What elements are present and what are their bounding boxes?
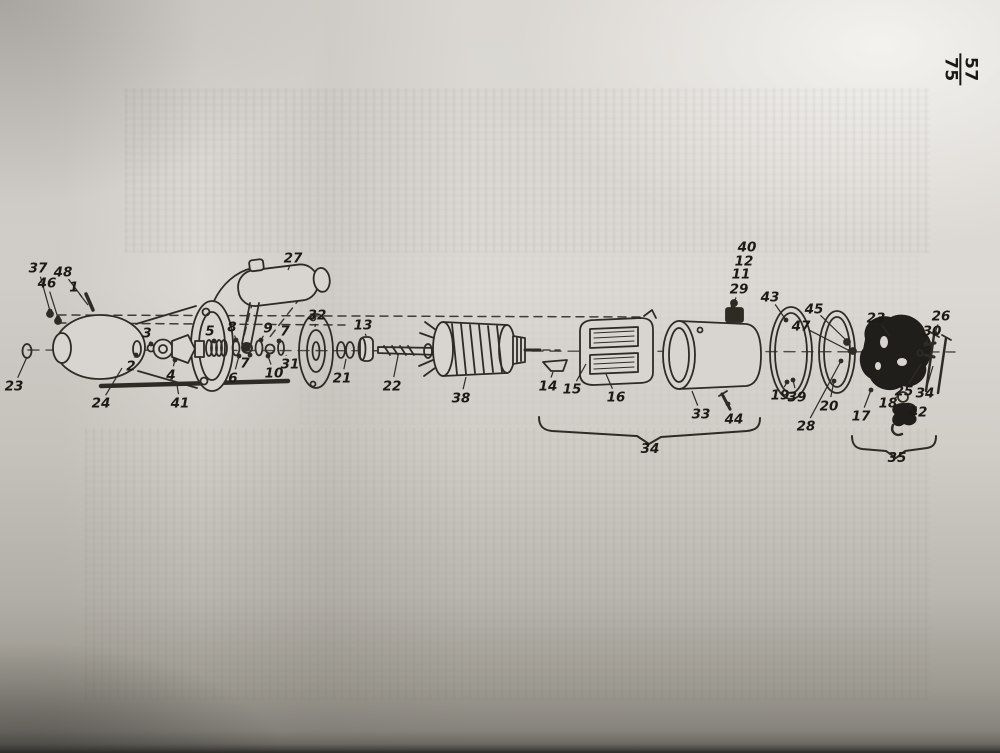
callout-14: 14 — [539, 379, 558, 395]
leader-dot — [56, 316, 61, 321]
leader-dot — [848, 349, 853, 354]
callout-19: 19 — [771, 388, 790, 404]
part-wedge — [543, 360, 567, 371]
leader-line — [365, 334, 366, 336]
part-brush-rings — [770, 307, 855, 399]
leader-dot — [149, 342, 154, 347]
callout-27: 27 — [284, 251, 303, 267]
callout-28: 28 — [797, 419, 816, 435]
callout-42: 42 — [908, 405, 928, 421]
leader-line — [394, 356, 398, 377]
leader-line — [463, 377, 466, 389]
callout-39: 39 — [788, 390, 807, 406]
part-terminal — [726, 308, 743, 322]
callout-23: 23 — [867, 311, 886, 327]
callout-31: 31 — [281, 357, 300, 373]
callout-7: 7 — [240, 356, 250, 372]
leader-dot — [845, 339, 850, 344]
part-drive-housing — [53, 268, 252, 391]
callout-22: 22 — [383, 379, 402, 395]
callout-7: 7 — [280, 324, 290, 340]
callout-25: 25 — [895, 384, 914, 400]
callout-16: 16 — [607, 390, 626, 406]
callout-11: 11 — [732, 267, 751, 283]
callout-44: 44 — [724, 412, 744, 428]
leader-dot — [784, 318, 789, 323]
callout-5: 5 — [205, 324, 214, 340]
callout-29: 29 — [730, 282, 749, 298]
brace-small-label: 35 — [888, 450, 907, 466]
leader-dot — [234, 338, 239, 343]
leader-line — [315, 324, 316, 327]
callout-6: 6 — [228, 371, 237, 387]
leader-dot — [839, 359, 844, 364]
leader-dot — [134, 353, 139, 358]
leader-dot — [266, 354, 271, 359]
leader-line — [177, 385, 179, 394]
part-washer-left — [23, 344, 32, 358]
callout-24: 24 — [92, 396, 111, 412]
leader-line — [864, 390, 871, 408]
leader-dot — [869, 388, 874, 393]
callout-38: 38 — [452, 391, 471, 407]
leader-line — [551, 372, 553, 378]
photographed-manual-page: 57 75 — [0, 0, 1000, 753]
callout-32: 32 — [308, 308, 327, 324]
part-bush — [359, 337, 374, 361]
part-shaft — [378, 344, 438, 358]
callout-13: 13 — [354, 318, 373, 334]
callout-3: 3 — [142, 326, 151, 342]
callout-2: 2 — [126, 359, 135, 375]
callout-8: 8 — [227, 320, 236, 336]
brace-large-label: 34 — [641, 441, 660, 457]
callout-41: 41 — [170, 396, 190, 412]
leader-dot — [259, 338, 264, 343]
part-armature — [419, 322, 540, 376]
callout-23: 23 — [5, 379, 24, 395]
leader-dot — [173, 358, 178, 363]
leader-dot — [785, 380, 790, 385]
callout-9: 9 — [263, 321, 272, 337]
callout-17: 17 — [852, 409, 871, 425]
leader-dot — [726, 402, 731, 407]
callout-20: 20 — [820, 399, 839, 415]
leader-line — [692, 391, 698, 406]
callout-30: 30 — [923, 324, 942, 340]
callout-48: 48 — [53, 265, 73, 281]
callout-33: 33 — [692, 407, 711, 423]
part-yoke — [663, 300, 761, 389]
callout-43: 43 — [760, 290, 780, 306]
leader-dot — [832, 379, 837, 384]
part-field-coils — [580, 310, 656, 385]
leader-line — [18, 357, 27, 378]
leader-dot — [791, 378, 796, 383]
leader-dot — [48, 309, 53, 314]
leader-dot — [924, 342, 929, 347]
callout-15: 15 — [563, 382, 582, 398]
callout-4: 4 — [165, 368, 175, 384]
callout-34: 34 — [916, 386, 935, 402]
part-tie-rod — [101, 381, 288, 386]
callout-26: 26 — [932, 309, 951, 325]
callout-37: 37 — [29, 261, 48, 277]
part-washer-set — [233, 341, 285, 356]
callout-45: 45 — [804, 302, 824, 318]
leader-dot — [731, 304, 736, 309]
callout-1: 1 — [69, 280, 78, 296]
leader-line — [344, 359, 346, 369]
exploded-parts-diagram: 3746481232423458976710312732132122381415… — [0, 0, 1000, 753]
callout-47: 47 — [791, 319, 811, 335]
callout-21: 21 — [333, 371, 352, 387]
